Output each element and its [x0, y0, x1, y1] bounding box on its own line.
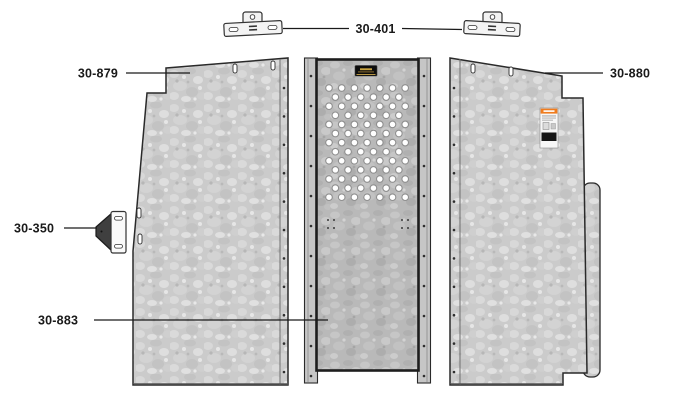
callout-30-350: 30-350 [14, 222, 97, 236]
left-panel-edge-slot [138, 234, 142, 244]
brand-plate [355, 66, 377, 77]
left-panel-edge-slot [137, 208, 141, 218]
leader-line [402, 29, 462, 30]
left-panel-top-slot [271, 61, 275, 70]
callout-30-401: 30-401 [283, 22, 462, 36]
left-panel [133, 58, 288, 385]
part-number-center-panel: 30-883 [38, 314, 78, 328]
warning-label [540, 108, 558, 148]
part-number-right-panel: 30-880 [610, 67, 650, 81]
right-panel-top-slot [509, 67, 513, 76]
part-number-side-bracket: 30-350 [14, 222, 54, 236]
right-panel-top-slot [471, 64, 475, 73]
mounting-bracket-left [224, 12, 283, 37]
mounting-bracket-right [464, 12, 521, 36]
side-bracket [96, 212, 126, 254]
left-panel-top-slot [233, 64, 237, 73]
parts-diagram: 30-401 30-879 30-880 30-350 30-883 [0, 0, 680, 418]
part-number-top-brackets: 30-401 [355, 22, 395, 36]
right-panel [450, 58, 587, 385]
part-number-left-panel: 30-879 [78, 67, 118, 81]
